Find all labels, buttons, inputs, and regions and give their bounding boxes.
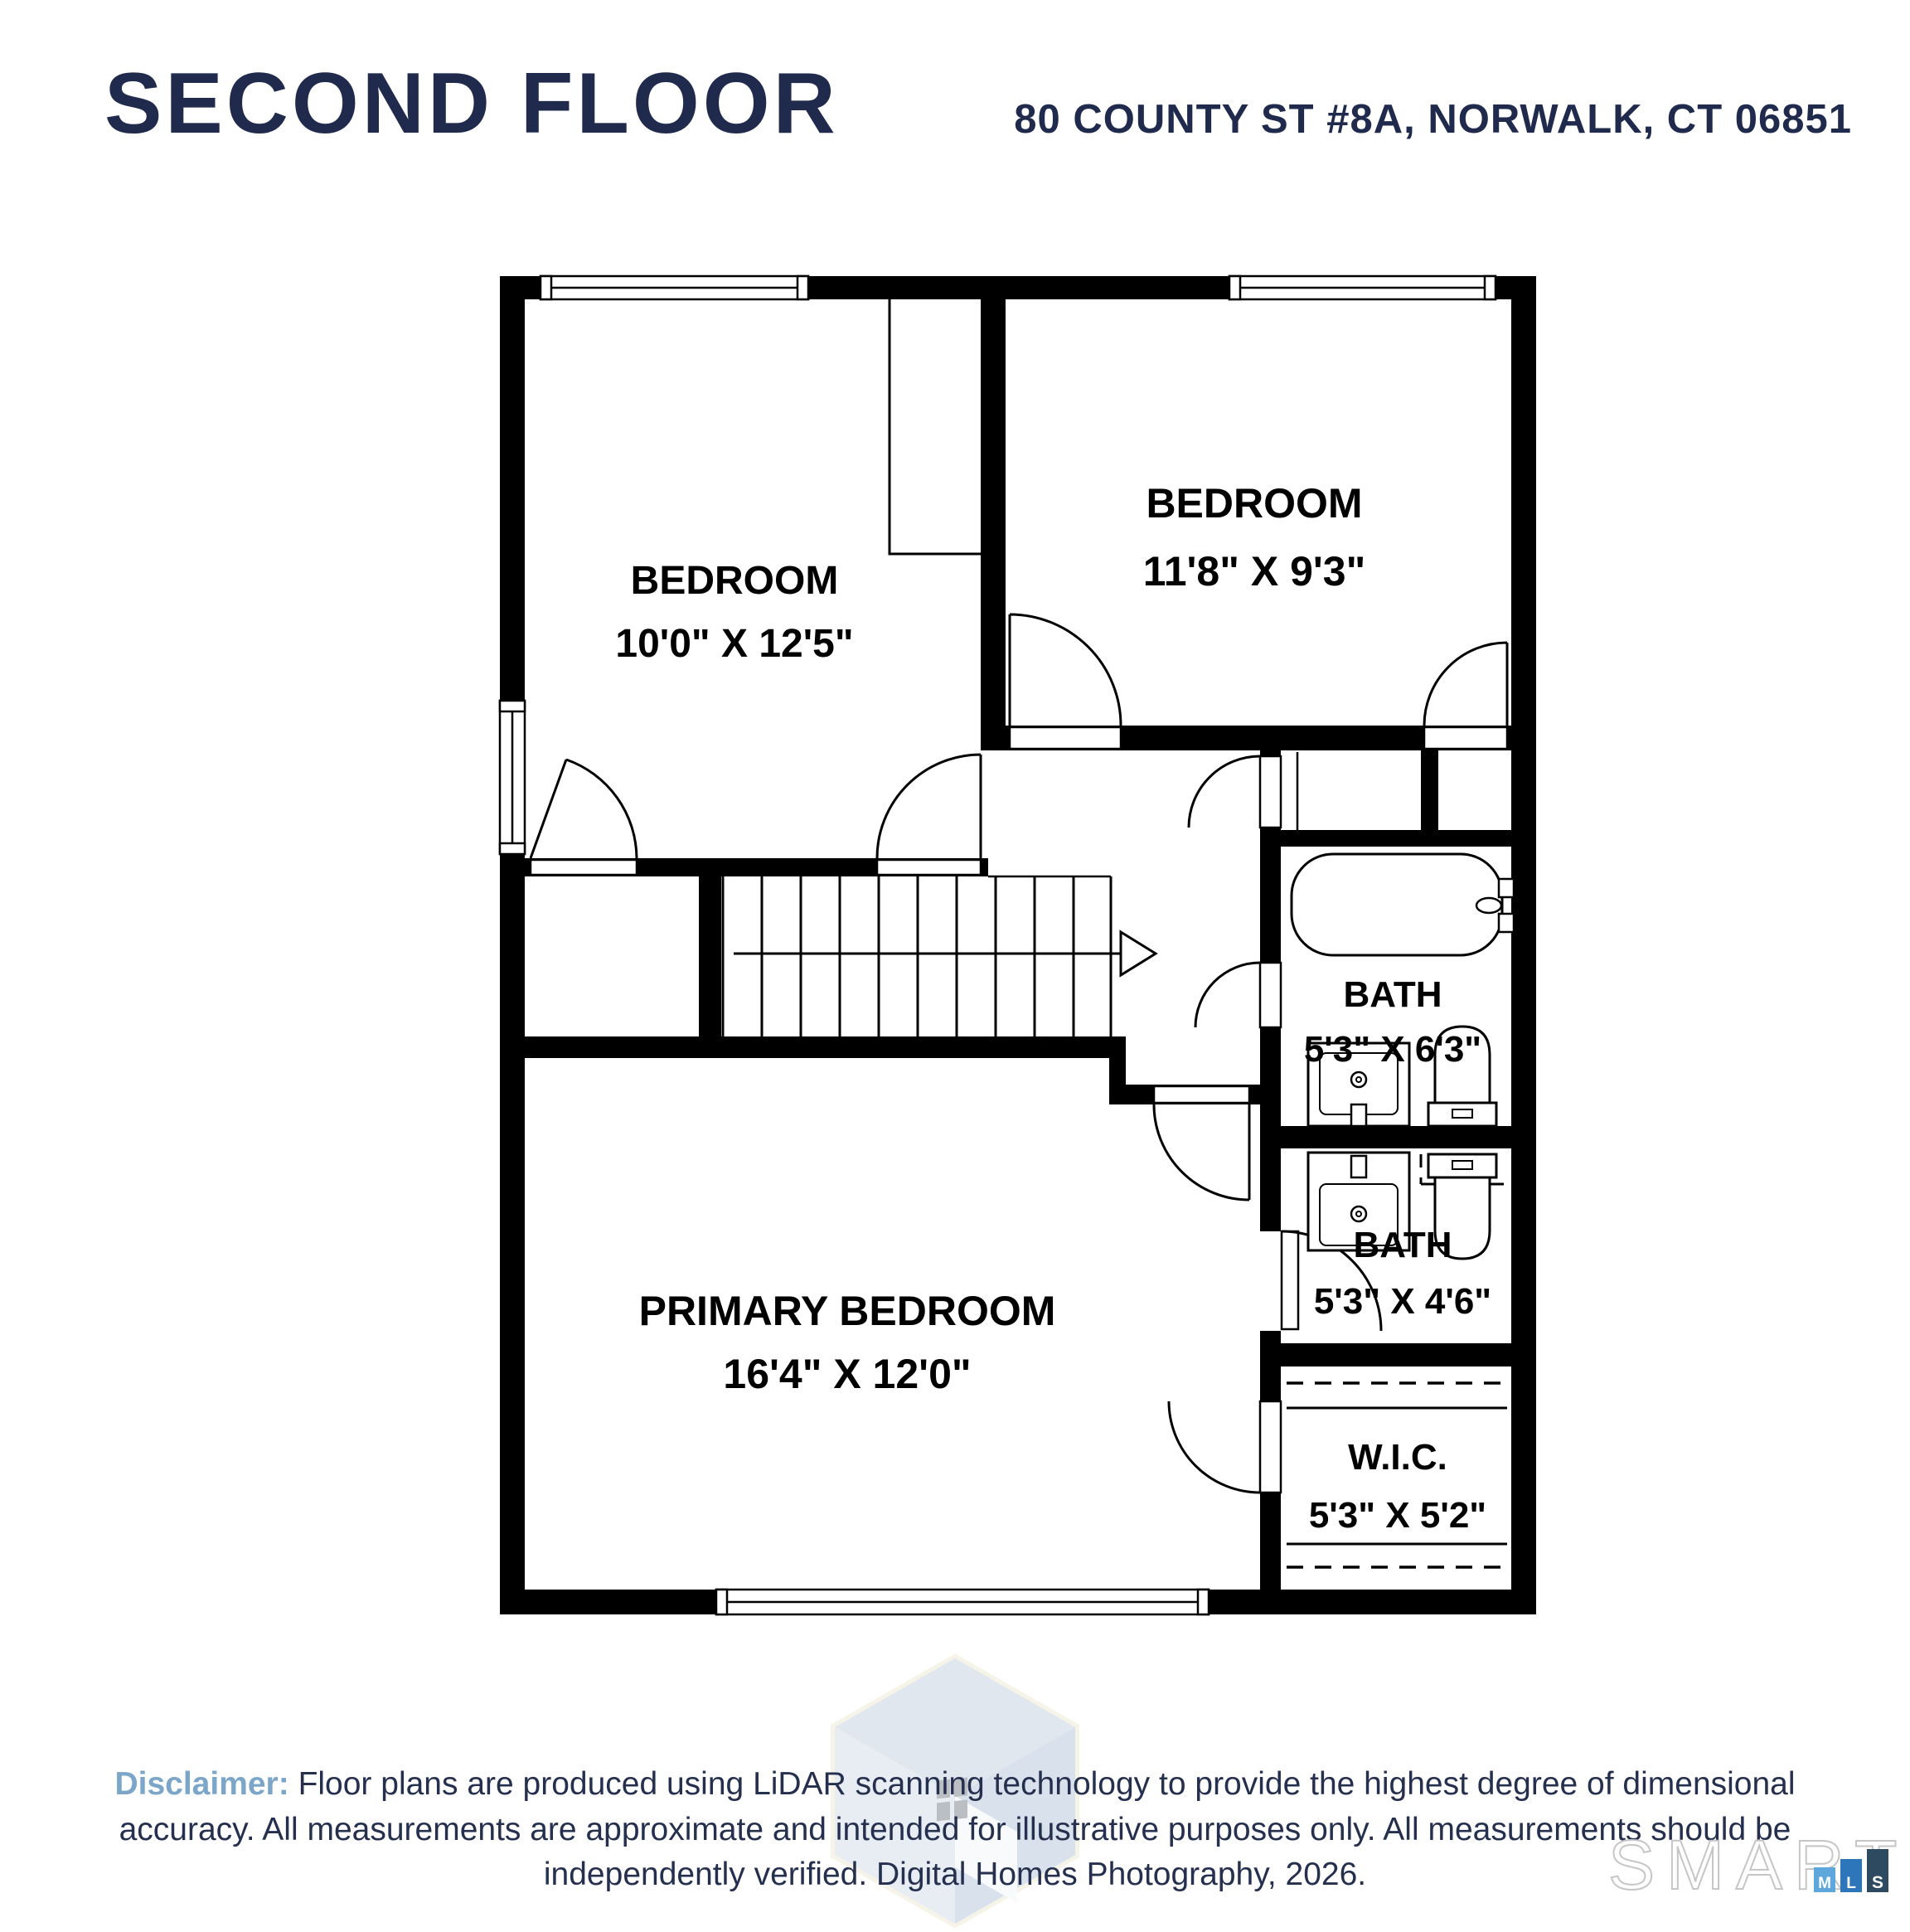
door-bedroom-2: [1010, 727, 1121, 749]
dims-bedroom-2: 11'8" X 9'3": [1143, 548, 1366, 595]
label-bedroom-1: BEDROOM: [631, 559, 839, 603]
stairs: [723, 876, 1156, 1036]
dims-bath-upper: 5'3" X 6'3": [1304, 1029, 1481, 1070]
stairs-direction-arrow: [734, 932, 1156, 975]
door-hall-closet: [1260, 756, 1281, 828]
door-bedroom-2-closet: [1424, 727, 1507, 749]
window-top-left: [541, 276, 808, 299]
dims-bedroom-1: 10'0" X 12'5": [615, 622, 853, 666]
disclaimer-text: Floor plans are produced using LiDAR sca…: [119, 1766, 1796, 1892]
door-wic: [1260, 1401, 1281, 1493]
bathtub-icon: [1292, 854, 1514, 955]
window-bottom: [716, 1590, 1209, 1614]
smart-mls-logo: SMART M L S: [1605, 1829, 1903, 1904]
svg-text:L: L: [1846, 1875, 1856, 1892]
label-primary-bedroom: PRIMARY BEDROOM: [639, 1288, 1056, 1334]
window-top-right: [1229, 276, 1496, 299]
disclaimer: Disclaimer: Floor plans are produced usi…: [60, 1762, 1850, 1898]
dims-primary-bedroom: 16'4" X 12'0": [723, 1351, 971, 1397]
door-bath-lower-opening: [1260, 1231, 1281, 1331]
dims-bath-lower: 5'3" X 4'6": [1314, 1281, 1491, 1322]
label-wic: W.I.C.: [1348, 1437, 1447, 1478]
bedroom-1-nook: [890, 299, 981, 554]
dims-wic: 5'3" X 5'2": [1309, 1495, 1486, 1536]
door-bath-lower-leaf: [1282, 1231, 1298, 1329]
door-bedroom-1-right: [877, 860, 981, 875]
label-bedroom-2: BEDROOM: [1146, 480, 1362, 527]
svg-text:M: M: [1818, 1875, 1831, 1892]
window-left: [500, 701, 525, 854]
door-bedroom-1-left: [531, 860, 637, 875]
door-bath-upper: [1260, 963, 1281, 1027]
door-primary-bedroom: [1154, 1086, 1249, 1103]
label-bath-upper: BATH: [1344, 974, 1442, 1015]
svg-text:S: S: [1872, 1873, 1883, 1892]
floor-plan: BEDROOM 10'0" X 12'5" BEDROOM 11'8" X 9'…: [0, 0, 1910, 1910]
disclaimer-label: Disclaimer:: [114, 1766, 288, 1802]
label-bath-lower: BATH: [1354, 1225, 1452, 1265]
